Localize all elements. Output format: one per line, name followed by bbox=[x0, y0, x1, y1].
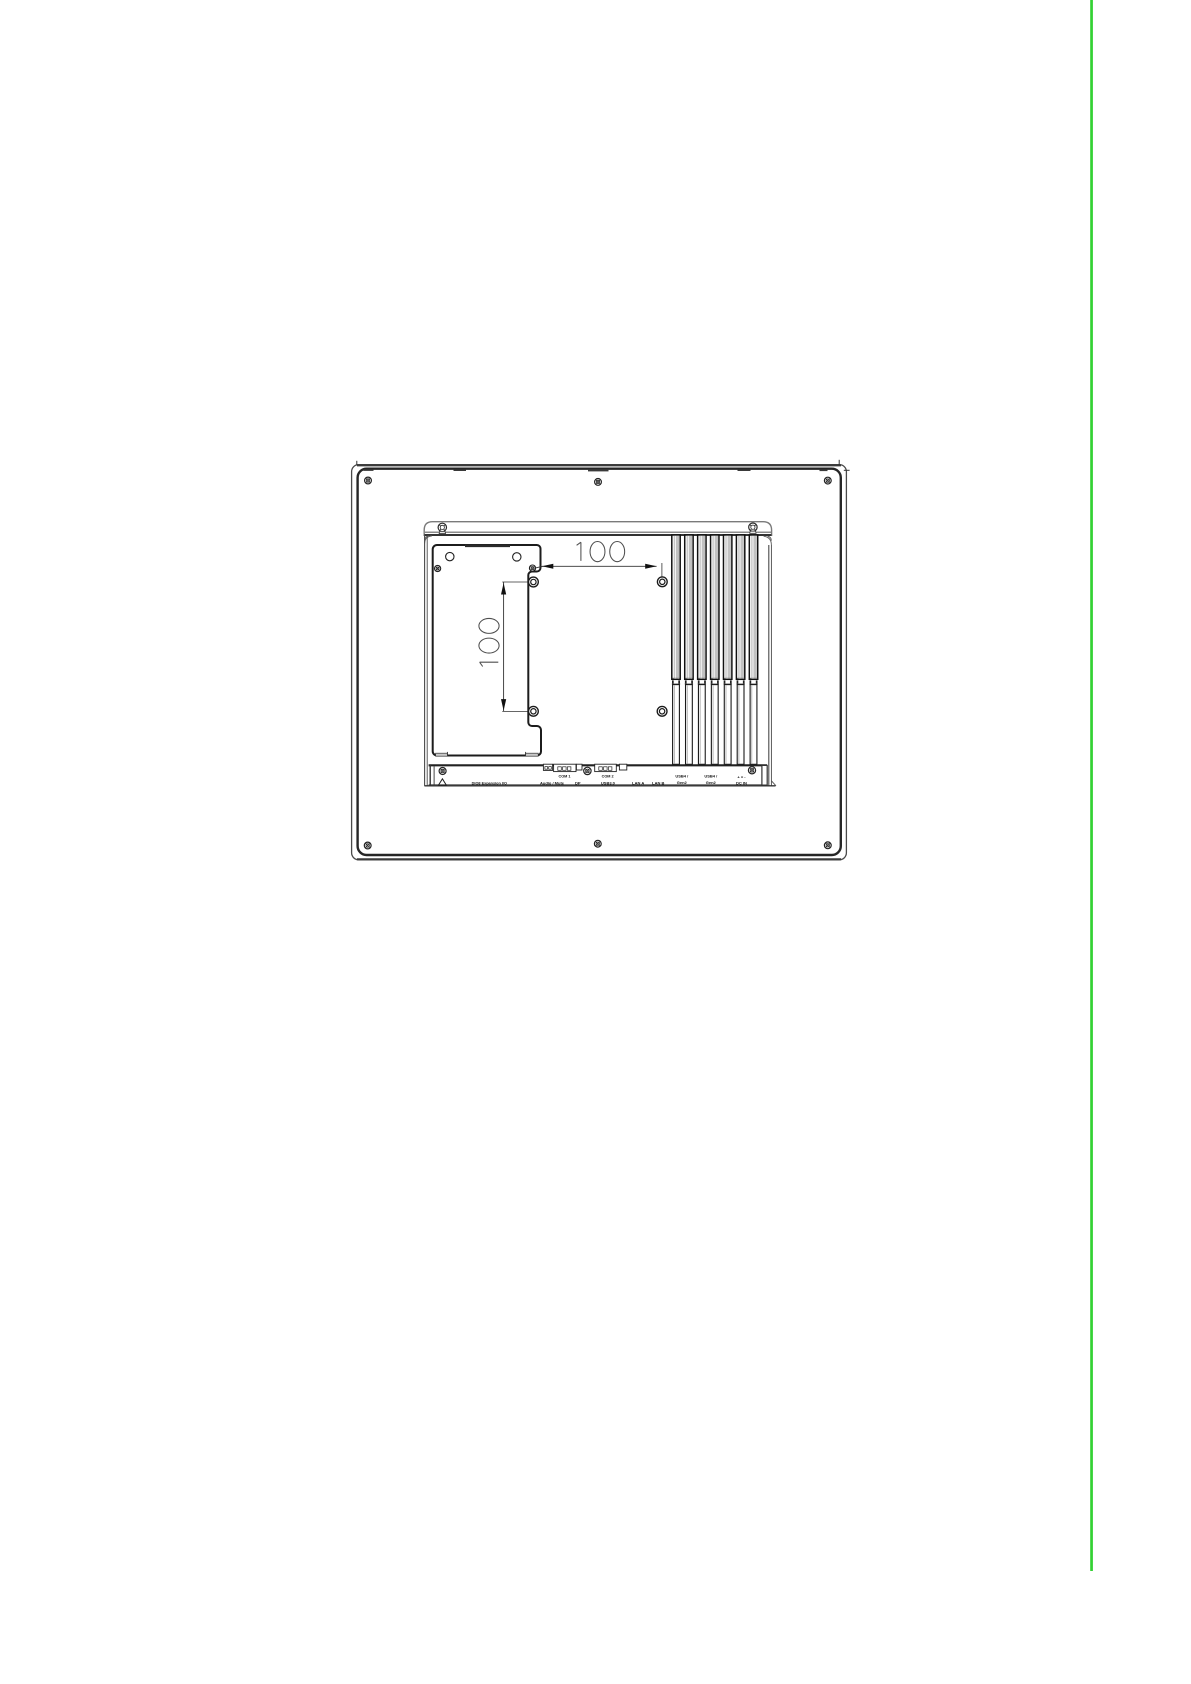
svg-text:Gen2: Gen2 bbox=[706, 780, 717, 785]
svg-text:COM 2: COM 2 bbox=[602, 775, 614, 779]
svg-text:+ = -: + = - bbox=[737, 774, 746, 779]
svg-text:Audio / Mute: Audio / Mute bbox=[540, 780, 565, 785]
svg-text:DC IN: DC IN bbox=[736, 780, 747, 785]
svg-text:LAN A: LAN A bbox=[632, 780, 644, 785]
svg-text:USB4 /: USB4 / bbox=[704, 774, 718, 779]
svg-text:USB4 /: USB4 / bbox=[675, 774, 689, 779]
svg-text:Gen2: Gen2 bbox=[677, 780, 688, 785]
svg-text:DP: DP bbox=[575, 780, 581, 785]
svg-text:USB3.0: USB3.0 bbox=[601, 780, 616, 785]
svg-text:DIO8 Expansion I/O: DIO8 Expansion I/O bbox=[472, 781, 507, 785]
svg-text:LAN B: LAN B bbox=[652, 780, 664, 785]
svg-text:COM 1: COM 1 bbox=[558, 775, 570, 779]
